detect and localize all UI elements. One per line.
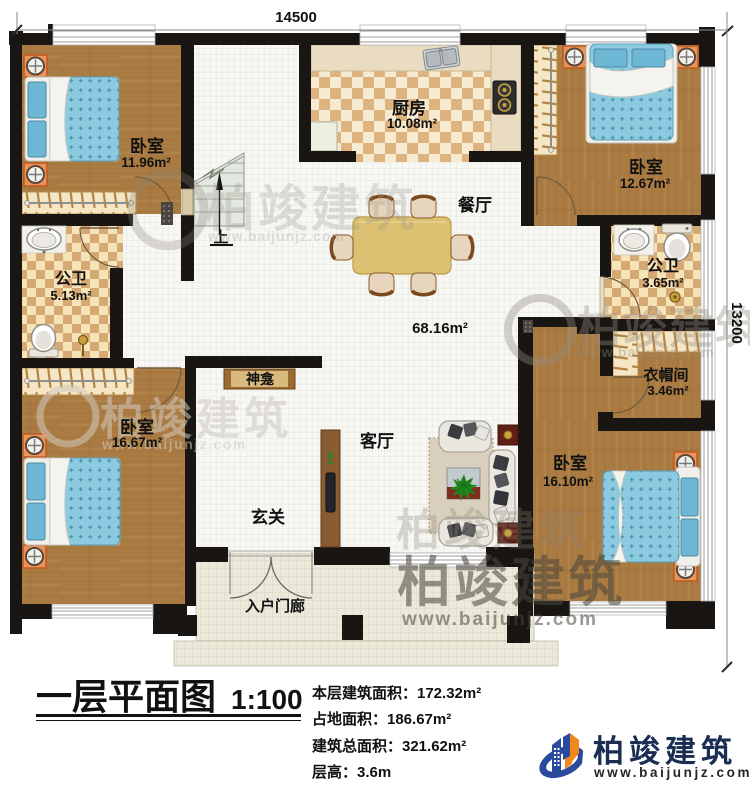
svg-text:12.67m²: 12.67m² bbox=[620, 176, 671, 191]
svg-text:10.08m²: 10.08m² bbox=[387, 116, 438, 131]
svg-text:本层建筑面积：172.32m²: 本层建筑面积：172.32m² bbox=[312, 684, 481, 702]
svg-text:卧室: 卧室 bbox=[120, 417, 154, 437]
svg-text:68.16m²: 68.16m² bbox=[412, 320, 468, 337]
svg-text:衣帽间: 衣帽间 bbox=[643, 366, 688, 384]
svg-text:13200: 13200 bbox=[728, 302, 745, 344]
svg-text:神龛: 神龛 bbox=[246, 371, 275, 387]
svg-text:建筑总面积：321.62m²: 建筑总面积：321.62m² bbox=[312, 737, 466, 755]
svg-text:入户门廊: 入户门廊 bbox=[245, 597, 305, 615]
svg-text:柏竣建筑: 柏竣建筑 bbox=[593, 734, 737, 769]
svg-text:卧室: 卧室 bbox=[553, 453, 587, 473]
svg-text:www.baijunjz.com: www.baijunjz.com bbox=[207, 228, 345, 244]
svg-text:占地面积：186.67m²: 占地面积：186.67m² bbox=[312, 710, 451, 728]
svg-text:餐厅: 餐厅 bbox=[458, 195, 492, 215]
svg-text:厨房: 厨房 bbox=[392, 98, 426, 118]
svg-text:1:100: 1:100 bbox=[231, 684, 303, 715]
svg-text:3.65m²: 3.65m² bbox=[642, 275, 684, 290]
svg-text:11.96m²: 11.96m² bbox=[121, 155, 171, 170]
svg-text:16.10m²: 16.10m² bbox=[543, 474, 594, 489]
svg-text:www.baijunjz.com: www.baijunjz.com bbox=[593, 765, 750, 780]
svg-text:www.baijunjz.com: www.baijunjz.com bbox=[401, 609, 598, 630]
svg-text:层高：3.6m: 层高：3.6m bbox=[312, 763, 391, 781]
svg-text:卧室: 卧室 bbox=[130, 136, 164, 156]
svg-text:公卫: 公卫 bbox=[55, 270, 87, 288]
svg-text:14500: 14500 bbox=[275, 9, 317, 26]
svg-text:公卫: 公卫 bbox=[647, 257, 679, 275]
svg-text:卧室: 卧室 bbox=[629, 157, 663, 177]
svg-text:16.67m²: 16.67m² bbox=[112, 435, 163, 450]
svg-text:玄关: 玄关 bbox=[251, 507, 285, 527]
svg-text:www.baijunjz.com: www.baijunjz.com bbox=[577, 344, 715, 360]
svg-text:3.46m²: 3.46m² bbox=[647, 383, 689, 398]
svg-text:5.13m²: 5.13m² bbox=[50, 288, 92, 303]
svg-text:一层平面图: 一层平面图 bbox=[36, 676, 216, 717]
svg-text:柏竣建筑: 柏竣建筑 bbox=[397, 553, 625, 613]
svg-text:柏竣建筑: 柏竣建筑 bbox=[396, 506, 588, 555]
svg-text:客厅: 客厅 bbox=[359, 431, 394, 451]
